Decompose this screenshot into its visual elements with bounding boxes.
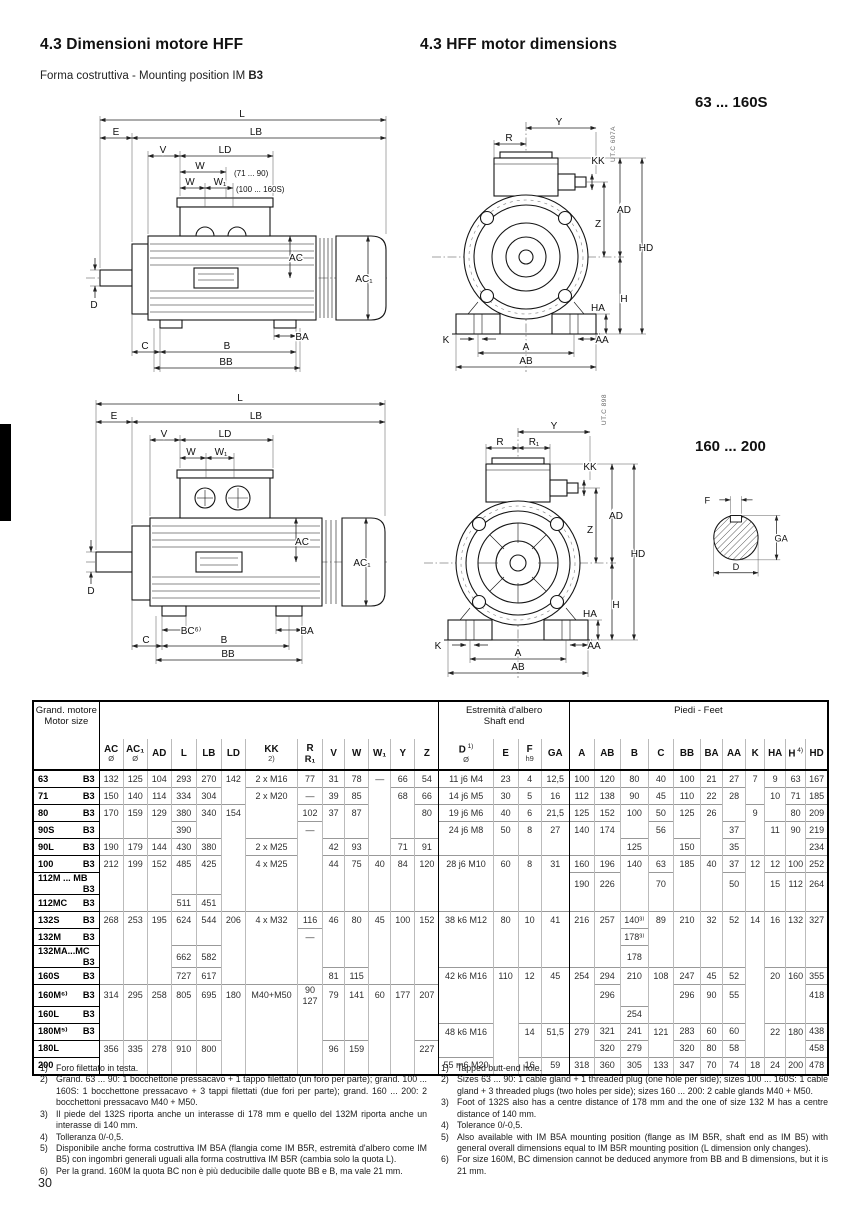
table-cell: 174 — [594, 822, 620, 839]
table-cell — [245, 895, 297, 912]
column-header-BB: BB — [673, 739, 700, 770]
table-cell: 50 — [723, 873, 746, 895]
table-cell — [594, 929, 620, 946]
table-cell: 70 — [648, 873, 673, 895]
table-cell — [369, 929, 391, 946]
table-cell — [673, 1006, 700, 1023]
table-cell: 320 — [594, 1040, 620, 1057]
table-cell: 4 x M32 — [245, 912, 297, 929]
table-cell: 60 — [701, 1023, 723, 1040]
table-cell: 314 — [99, 985, 123, 1006]
column-header-W1: W₁ — [369, 739, 391, 770]
motor-size-cell: 160SB3 — [33, 968, 99, 985]
table-cell — [221, 1023, 245, 1040]
table-cell — [746, 1040, 765, 1057]
table-cell: 185 — [673, 856, 700, 873]
table-cell: 22 — [701, 788, 723, 805]
table-cell: 45 — [541, 968, 569, 985]
table-cell — [518, 895, 541, 912]
table-cell — [746, 788, 765, 805]
table-cell — [323, 822, 345, 839]
table-cell: 60 — [723, 1023, 746, 1040]
table-cell: 254 — [569, 968, 594, 985]
column-header-D: D 1)Ø — [439, 739, 493, 770]
table-cell — [701, 839, 723, 856]
table-cell — [723, 895, 746, 912]
motor-size-cell: 132MB3 — [33, 929, 99, 946]
table-cell — [723, 805, 746, 822]
column-header-AD: AD — [147, 739, 171, 770]
table-cell — [701, 873, 723, 895]
column-header-K: K — [746, 739, 765, 770]
table-cell: 100 — [620, 805, 648, 822]
table-cell: 544 — [196, 912, 221, 929]
table-cell — [245, 1023, 297, 1040]
table-cell — [369, 946, 391, 968]
table-cell: 227 — [415, 1040, 439, 1057]
table-cell: 216 — [569, 912, 594, 929]
table-cell: 624 — [171, 912, 196, 929]
table-cell: 125 — [123, 770, 147, 788]
table-cell — [345, 1006, 369, 1023]
table-cell — [369, 1023, 391, 1040]
table-cell — [99, 929, 123, 946]
table-cell: 19 j6 M6 — [439, 805, 493, 822]
table-cell: 451 — [196, 895, 221, 912]
dim-label-B: B — [224, 341, 231, 352]
table-cell: 170 — [99, 805, 123, 822]
table-cell — [147, 895, 171, 912]
table-cell — [439, 946, 493, 968]
table-cell: 264 — [806, 873, 828, 895]
table-cell: 115 — [345, 968, 369, 985]
table-cell: 190 — [99, 839, 123, 856]
table-cell — [765, 839, 786, 856]
table-cell: 334 — [171, 788, 196, 805]
table-cell — [323, 1006, 345, 1023]
table-cell — [701, 946, 723, 968]
table-cell — [620, 873, 648, 895]
table-cell: 24 j6 M8 — [439, 822, 493, 839]
dim-label-LB: LB — [250, 127, 263, 138]
table-cell — [620, 822, 648, 839]
table-cell — [391, 946, 415, 968]
table-cell — [245, 946, 297, 968]
dim-label-H: H — [612, 600, 619, 611]
table-cell — [123, 873, 147, 895]
table-cell — [415, 873, 439, 895]
table-cell: 195 — [147, 912, 171, 929]
table-cell: 66 — [391, 770, 415, 788]
table-cell — [594, 895, 620, 912]
footnote-item: 1)Foro filettato in testa. — [40, 1063, 427, 1074]
size-range-bottom-label: 160 ... 200 — [695, 438, 766, 455]
table-row: 71B31501401143343042 x M20—3985686614 j6… — [33, 788, 828, 805]
table-cell — [493, 1023, 518, 1040]
table-cell — [786, 1006, 806, 1023]
table-cell — [369, 839, 391, 856]
table-cell — [123, 929, 147, 946]
table-cell — [391, 1040, 415, 1057]
table-header-gap — [99, 701, 439, 739]
table-cell: 40 — [701, 856, 723, 873]
table-row: 112M ... MBB3190226705015112264 — [33, 873, 828, 895]
table-cell — [245, 968, 297, 985]
table-cell: — — [298, 929, 323, 946]
range-note-71-90: (71 ... 90) — [234, 169, 269, 178]
table-cell — [298, 1023, 323, 1040]
table-cell: 102 — [298, 805, 323, 822]
table-cell: 219 — [806, 822, 828, 839]
table-cell: 11 — [765, 822, 786, 839]
table-cell — [648, 929, 673, 946]
table-cell: 20 — [765, 968, 786, 985]
dim-label-AA: AA — [595, 335, 609, 346]
table-row: 112MCB3511451 — [33, 895, 828, 912]
column-header-AB: AB — [594, 739, 620, 770]
dim-label-GA: GA — [774, 533, 788, 543]
dim-label-K: K — [443, 335, 450, 346]
range-note-100-160s: (100 ... 160S) — [236, 185, 285, 194]
column-header-LB: LB — [196, 739, 221, 770]
table-cell: 90 — [701, 985, 723, 1006]
table-cell — [369, 1040, 391, 1057]
table-cell: 10 — [518, 912, 541, 929]
dim-label-B: B — [221, 635, 228, 646]
table-cell — [298, 968, 323, 985]
table-cell — [99, 946, 123, 968]
table-cell: 234 — [806, 839, 828, 856]
table-cell — [99, 1006, 123, 1023]
table-cell: 58 — [723, 1040, 746, 1057]
table-cell — [196, 1006, 221, 1023]
table-cell — [746, 929, 765, 946]
table-cell: 87 — [345, 805, 369, 822]
table-cell — [786, 1040, 806, 1057]
table-cell: 112 — [786, 873, 806, 895]
table-cell: 48 k6 M16 — [439, 1023, 493, 1040]
dim-label-HD: HD — [639, 243, 653, 254]
table-cell: 80 — [786, 805, 806, 822]
table-cell — [746, 873, 765, 895]
table-cell — [541, 873, 569, 895]
table-cell: 278 — [147, 1040, 171, 1057]
dim-label-R: R — [505, 133, 512, 144]
table-cell: 140³⁾ — [620, 912, 648, 929]
table-cell: 210 — [673, 912, 700, 929]
table-cell: 45 — [648, 788, 673, 805]
footnote-item: 2)Sizes 63 ... 90: 1 cable gland + 1 thr… — [441, 1074, 828, 1097]
table-cell: 112 — [569, 788, 594, 805]
dimensions-table: Grand. motore Motor size Estremità d'alb… — [32, 700, 829, 1076]
table-cell: 27 — [541, 822, 569, 839]
table-cell — [541, 895, 569, 912]
table-cell: 458 — [806, 1040, 828, 1057]
table-cell: 90 — [620, 788, 648, 805]
table-cell — [541, 985, 569, 1006]
table-cell: 180 — [221, 985, 245, 1006]
dim-label-HA: HA — [583, 609, 597, 620]
footnote-item: 6)Per la grand. 160M la quota BC non è p… — [40, 1166, 427, 1177]
table-cell: 31 — [541, 856, 569, 873]
column-header-R: RR₁ — [298, 739, 323, 770]
table-cell — [123, 1023, 147, 1040]
table-cell: 71 — [786, 788, 806, 805]
table-cell — [569, 946, 594, 968]
dim-label-LB: LB — [250, 411, 263, 422]
table-cell: 16 — [765, 912, 786, 929]
motor-size-cell: 180M⁵⁾B3 — [33, 1023, 99, 1040]
table-cell — [701, 929, 723, 946]
dim-label-L: L — [239, 109, 245, 120]
table-cell: — — [298, 788, 323, 805]
table-cell — [415, 895, 439, 912]
table-cell — [493, 873, 518, 895]
dim-label-D: D — [90, 300, 97, 311]
dim-label-AB: AB — [519, 356, 533, 367]
table-cell — [323, 1023, 345, 1040]
table-cell: 356 — [99, 1040, 123, 1057]
table-row: 80B317015912938034015410237878019 j6 M64… — [33, 805, 828, 822]
table-row: 132MB3—178³⁾ — [33, 929, 828, 946]
table-cell: 283 — [673, 1023, 700, 1040]
table-cell: 16 — [541, 788, 569, 805]
table-cell — [345, 929, 369, 946]
table-cell: 100 — [786, 856, 806, 873]
dim-label-HA: HA — [591, 303, 605, 314]
dim-label-A: A — [523, 342, 530, 353]
table-cell: 304 — [196, 788, 221, 805]
motor-size-cell: 80B3 — [33, 805, 99, 822]
table-cell — [806, 895, 828, 912]
table-cell: 32 — [701, 912, 723, 929]
table-cell — [673, 929, 700, 946]
footnote-item: 4)Tolleranza 0/-0,5. — [40, 1132, 427, 1143]
column-header-V: V — [323, 739, 345, 770]
dim-label-AB: AB — [511, 662, 525, 673]
dim-label-AC: AC — [289, 253, 303, 264]
table-cell — [298, 946, 323, 968]
table-cell: 60 — [493, 856, 518, 873]
table-cell: 180 — [786, 1023, 806, 1040]
table-cell — [765, 946, 786, 968]
table-cell: 4 — [518, 770, 541, 788]
footnote-item: 6)For size 160M, BC dimension cannot be … — [441, 1154, 828, 1177]
table-cell: 252 — [806, 856, 828, 873]
table-cell — [245, 873, 297, 895]
table-cell — [171, 1023, 196, 1040]
table-cell — [701, 895, 723, 912]
table-cell — [391, 929, 415, 946]
table-cell — [569, 1040, 594, 1057]
table-cell: 35 — [723, 839, 746, 856]
table-cell — [221, 873, 245, 895]
table-cell — [493, 839, 518, 856]
front-view-bottom-drawing: Y R R₁ KK Z AD H HD HA K AA A AB — [418, 418, 658, 683]
column-header-Z: Z — [415, 739, 439, 770]
table-cell: 2 x M25 — [245, 839, 297, 856]
table-cell — [786, 895, 806, 912]
table-cell: 63 — [786, 770, 806, 788]
table-cell: 108 — [648, 968, 673, 985]
table-cell — [518, 873, 541, 895]
footnote-item: 2)Grand. 63 ... 90: 1 bocchettone pressa… — [40, 1074, 427, 1108]
section-tab-marker — [0, 424, 11, 521]
table-cell: 327 — [806, 912, 828, 929]
table-cell: 258 — [147, 985, 171, 1006]
table-cell: 210 — [620, 968, 648, 985]
table-cell: 79 — [323, 985, 345, 1006]
table-cell: 40 — [648, 770, 673, 788]
table-cell: 56 — [648, 822, 673, 839]
table-cell — [415, 929, 439, 946]
table-cell: 142 — [221, 770, 245, 788]
table-cell — [391, 805, 415, 822]
dim-label-AD: AD — [609, 511, 623, 522]
table-cell — [147, 929, 171, 946]
table-cell — [345, 873, 369, 895]
table-cell: 71 — [391, 839, 415, 856]
table-cell: 185 — [806, 788, 828, 805]
table-cell — [723, 1006, 746, 1023]
table-cell: 68 — [391, 788, 415, 805]
dim-label-W1: W₁ — [214, 177, 227, 188]
table-row: 160M⁶⁾B3314295258805695180M40+M5090 1277… — [33, 985, 828, 1006]
table-cell — [569, 929, 594, 946]
table-cell: 140 — [620, 856, 648, 873]
dim-label-AA: AA — [587, 641, 601, 652]
table-cell: 425 — [196, 856, 221, 873]
motor-size-cell: 160LB3 — [33, 1006, 99, 1023]
dim-label-Z: Z — [595, 219, 601, 230]
table-cell: 212 — [99, 856, 123, 873]
motor-size-cell: 112MCB3 — [33, 895, 99, 912]
table-cell: 254 — [620, 1006, 648, 1023]
table-cell: 116 — [298, 912, 323, 929]
table-cell — [99, 822, 123, 839]
table-cell: 159 — [345, 1040, 369, 1057]
table-cell: 90 127 — [298, 985, 323, 1006]
table-cell: 45 — [369, 912, 391, 929]
table-cell: 199 — [123, 856, 147, 873]
dim-label-W: W — [186, 447, 196, 458]
table-cell — [123, 1006, 147, 1023]
table-cell: 207 — [415, 985, 439, 1006]
table-cell — [673, 946, 700, 968]
table-row: 180L356335278910800961592273202793208058… — [33, 1040, 828, 1057]
table-cell: 511 — [171, 895, 196, 912]
table-cell: 8 — [518, 856, 541, 873]
group-header-shaft-end: Estremità d'albero Shaft end — [439, 701, 569, 739]
footnote-item: 1)Tapped butt-end hole. — [441, 1063, 828, 1074]
motor-size-cell: 90SB3 — [33, 822, 99, 839]
table-cell: 39 — [323, 788, 345, 805]
table-cell: 12 — [518, 968, 541, 985]
table-cell — [369, 968, 391, 985]
table-cell: 110 — [673, 788, 700, 805]
table-cell — [323, 873, 345, 895]
table-cell: 179 — [123, 839, 147, 856]
table-cell — [673, 873, 700, 895]
table-cell — [123, 946, 147, 968]
table-cell: 154 — [221, 805, 245, 822]
table-cell — [518, 1040, 541, 1057]
table-cell — [171, 929, 196, 946]
table-row: 90SB3390—24 j6 M85082714017456371190219 — [33, 822, 828, 839]
column-header-E: E — [493, 739, 518, 770]
table-cell — [323, 946, 345, 968]
table-cell — [391, 1006, 415, 1023]
motor-size-cell: 132MA...MCB3 — [33, 946, 99, 968]
table-cell — [99, 873, 123, 895]
footnote-item: 3)Foot of 132S also has a centre distanc… — [441, 1097, 828, 1120]
table-cell: 9 — [765, 770, 786, 788]
table-cell — [391, 968, 415, 985]
table-cell — [746, 1023, 765, 1040]
table-cell — [123, 822, 147, 839]
column-header-B: B — [620, 739, 648, 770]
group-header-feet: Piedi - Feet — [569, 701, 828, 739]
table-cell — [569, 985, 594, 1006]
table-cell — [221, 946, 245, 968]
table-cell: 150 — [673, 839, 700, 856]
table-cell — [221, 929, 245, 946]
dim-label-R1: R₁ — [529, 437, 540, 448]
table-cell: 293 — [171, 770, 196, 788]
table-cell: 296 — [594, 985, 620, 1006]
table-cell: 485 — [171, 856, 196, 873]
table-cell: 295 — [123, 985, 147, 1006]
table-cell: 178 — [620, 946, 648, 968]
table-cell — [298, 1040, 323, 1057]
table-cell: 11 j6 M4 — [439, 770, 493, 788]
table-cell: 40 — [493, 805, 518, 822]
table-cell: 50 — [493, 822, 518, 839]
table-cell: 96 — [323, 1040, 345, 1057]
table-row: 100B32121991524854254 x M254475408412028… — [33, 856, 828, 873]
table-cell: 910 — [171, 1040, 196, 1057]
table-cell — [221, 1040, 245, 1057]
table-cell — [648, 1006, 673, 1023]
table-cell: 430 — [171, 839, 196, 856]
table-cell: 60 — [369, 985, 391, 1006]
table-cell — [648, 1040, 673, 1057]
column-header-A: A — [569, 739, 594, 770]
dim-label-W1: W₁ — [215, 447, 228, 458]
dim-label-KK: KK — [583, 462, 597, 473]
table-cell: 2 x M16 — [245, 770, 297, 788]
table-cell — [541, 839, 569, 856]
footnote-item: 5)Disponibile anche forma costruttiva IM… — [40, 1143, 427, 1166]
table-cell: 380 — [196, 839, 221, 856]
table-cell — [746, 822, 765, 839]
table-cell: 42 k6 M16 — [439, 968, 493, 985]
table-cell — [541, 1040, 569, 1057]
table-cell: M40+M50 — [245, 985, 297, 1006]
dim-label-K: K — [435, 641, 442, 652]
table-row: 132SB32682531956245442064 x M32116468045… — [33, 912, 828, 929]
table-cell: 321 — [594, 1023, 620, 1040]
table-cell: 296 — [673, 985, 700, 1006]
table-cell — [415, 1006, 439, 1023]
table-cell: 77 — [298, 770, 323, 788]
table-cell: 45 — [701, 968, 723, 985]
table-cell: 279 — [569, 1023, 594, 1040]
size-range-top-label: 63 ... 160S — [695, 94, 768, 111]
table-cell — [493, 1006, 518, 1023]
dim-label-KK: KK — [591, 156, 605, 167]
table-cell: 46 — [323, 912, 345, 929]
